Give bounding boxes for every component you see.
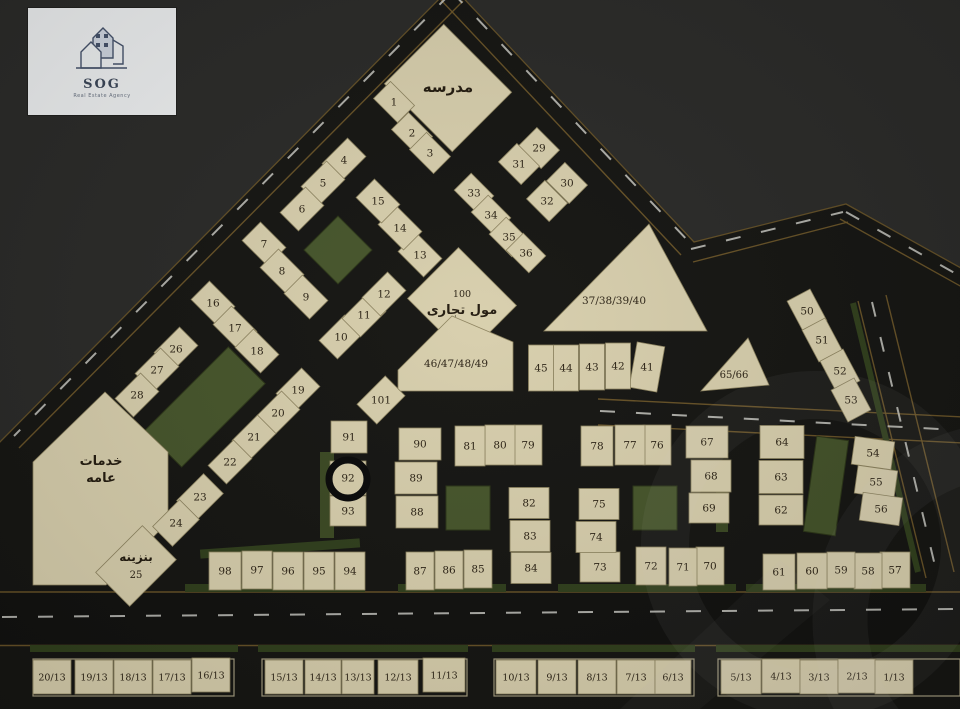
area-public-services-label: خدمات bbox=[80, 454, 123, 469]
parcel-13/13: 13/13 bbox=[342, 660, 374, 694]
area-mall-label: مول تجارى bbox=[427, 303, 498, 318]
parcel-80: 80 bbox=[485, 425, 515, 465]
parcel-label: 11/13 bbox=[430, 671, 457, 682]
parcel-label: 79 bbox=[521, 440, 534, 452]
parcel-18/13: 18/13 bbox=[114, 660, 152, 694]
agency-logo: SOG Real Estate Agency bbox=[28, 8, 176, 115]
parcel-label: 9 bbox=[303, 292, 310, 304]
parcel-label: 60 bbox=[805, 566, 818, 578]
parcel-label: 84 bbox=[524, 563, 538, 575]
parcel-label: 16 bbox=[206, 298, 220, 310]
parcel-label: 85 bbox=[471, 564, 484, 576]
parcel-label: 82 bbox=[522, 498, 535, 510]
parcel-label: 13/13 bbox=[344, 673, 371, 684]
parcel-label: 8/13 bbox=[586, 673, 607, 684]
parcel-label: 92 bbox=[341, 473, 354, 485]
parcel-label: 93 bbox=[341, 506, 354, 518]
parcel-label: 88 bbox=[410, 507, 423, 519]
area-gas-station-label: بنزينه bbox=[119, 550, 153, 564]
parcel-85: 85 bbox=[464, 550, 492, 588]
parcel-label: 36 bbox=[519, 248, 533, 260]
parcel-70: 70 bbox=[696, 547, 724, 585]
parcel-label: 19/13 bbox=[80, 673, 107, 684]
parcel-label: 30 bbox=[560, 178, 573, 190]
parcel-64: 64 bbox=[760, 426, 804, 459]
parcel-label: 20 bbox=[271, 408, 284, 420]
parcel-44: 44 bbox=[554, 345, 579, 391]
parcel-label: 31 bbox=[512, 159, 525, 171]
area-plots-65-66-label: 65/66 bbox=[720, 370, 749, 381]
parcel-label: 75 bbox=[592, 499, 605, 511]
parcel-label: 42 bbox=[611, 361, 624, 373]
parcel-label: 8 bbox=[279, 266, 286, 278]
parcel-label: 23 bbox=[193, 492, 206, 504]
parcel-57: 57 bbox=[880, 552, 910, 588]
parcel-label: 76 bbox=[650, 440, 664, 452]
parcel-17/13: 17/13 bbox=[153, 660, 191, 694]
site-plan-canvas: مدرسه100مول تجارىخدماتعامهبنزينه2537/38/… bbox=[0, 0, 960, 709]
parcel-11/13: 11/13 bbox=[423, 658, 465, 692]
parcel-43: 43 bbox=[580, 344, 605, 390]
sog-logo-house-icon bbox=[71, 24, 133, 76]
parcel-63: 63 bbox=[759, 461, 803, 494]
parcel-label: 90 bbox=[413, 439, 426, 451]
parcel-label: 57 bbox=[888, 565, 901, 577]
parcel-10/13: 10/13 bbox=[496, 660, 536, 694]
parcel-label: 33 bbox=[467, 188, 480, 200]
parcel-81: 81 bbox=[455, 426, 485, 466]
area-gas-station-label: 25 bbox=[130, 570, 143, 581]
parcel-label: 29 bbox=[532, 143, 545, 155]
parcel-15/13: 15/13 bbox=[265, 660, 303, 694]
parcel-45: 45 bbox=[529, 345, 554, 391]
parcel-label: 73 bbox=[593, 562, 606, 574]
parcel-label: 80 bbox=[493, 440, 506, 452]
parcel-label: 12/13 bbox=[384, 673, 411, 684]
parcel-label: 11 bbox=[357, 310, 370, 322]
parcel-label: 94 bbox=[343, 566, 357, 578]
parcel-74: 74 bbox=[576, 522, 616, 553]
parcel-90: 90 bbox=[399, 428, 441, 460]
parcel-label: 18 bbox=[250, 346, 263, 358]
parcel-62: 62 bbox=[759, 495, 803, 525]
parcel-label: 91 bbox=[342, 432, 355, 444]
parcel-86: 86 bbox=[435, 551, 463, 589]
parcel-label: 7 bbox=[261, 239, 268, 251]
parcel-label: 97 bbox=[250, 565, 263, 577]
parcel-96: 96 bbox=[273, 552, 303, 590]
parcel-label: 34 bbox=[484, 210, 498, 222]
logo-title: SOG bbox=[83, 77, 121, 92]
parcel-label: 77 bbox=[623, 440, 636, 452]
parcel-label: 28 bbox=[130, 390, 143, 402]
parcel-77: 77 bbox=[615, 425, 645, 465]
parcel-16/13: 16/13 bbox=[192, 658, 230, 692]
parcel-label: 87 bbox=[413, 566, 426, 578]
parcel-84: 84 bbox=[511, 553, 551, 584]
parcel-label: 2 bbox=[409, 128, 416, 140]
parcel-label: 5 bbox=[320, 178, 327, 190]
parcel-label: 17 bbox=[228, 323, 241, 335]
parcel-label: 69 bbox=[702, 503, 715, 515]
parcel-label: 86 bbox=[442, 565, 456, 577]
parcel-label: 13 bbox=[413, 250, 426, 262]
parcel-label: 81 bbox=[463, 441, 476, 453]
parcel-83: 83 bbox=[510, 521, 550, 552]
parcel-label: 70 bbox=[703, 561, 716, 573]
area-school-label: مدرسه bbox=[423, 78, 473, 96]
parcel-14/13: 14/13 bbox=[305, 660, 341, 694]
parcel-89: 89 bbox=[395, 462, 437, 494]
parcel-label: 95 bbox=[312, 566, 325, 578]
parcel-8/13: 8/13 bbox=[578, 660, 616, 694]
parcel-label: 10 bbox=[334, 332, 347, 344]
parcel-label: 10/13 bbox=[502, 673, 529, 684]
parcel-label: 18/13 bbox=[119, 673, 146, 684]
parcel-label: 1 bbox=[391, 97, 398, 109]
parcel-label: 83 bbox=[523, 531, 536, 543]
parcel-label: 63 bbox=[774, 472, 787, 484]
parcel-82: 82 bbox=[509, 488, 549, 519]
area-plots-46-49-label: 46/47/48/49 bbox=[424, 358, 488, 370]
parcel-label: 9/13 bbox=[546, 673, 567, 684]
parcel-label: 27 bbox=[150, 365, 163, 377]
parcel-label: 26 bbox=[169, 344, 183, 356]
parcel-label: 14 bbox=[393, 223, 407, 235]
parcel-88: 88 bbox=[396, 496, 438, 528]
parcel-label: 3 bbox=[427, 148, 434, 160]
parcel-label: 15/13 bbox=[270, 673, 297, 684]
parcel-label: 64 bbox=[775, 437, 789, 449]
parcel-78: 78 bbox=[581, 426, 613, 466]
parcel-label: 6 bbox=[299, 204, 306, 216]
parcel-label: 21 bbox=[247, 432, 260, 444]
parcel-label: 12 bbox=[377, 289, 390, 301]
area-mall-label: 100 bbox=[453, 289, 471, 300]
parcel-label: 20/13 bbox=[38, 673, 65, 684]
parcel-label: 41 bbox=[640, 362, 653, 374]
area-public-services-label: عامه bbox=[86, 471, 116, 486]
parcel-20/13: 20/13 bbox=[33, 660, 71, 694]
parcel-label: 35 bbox=[502, 232, 515, 244]
parcel-label: 51 bbox=[815, 335, 828, 347]
parcel-19/13: 19/13 bbox=[75, 660, 113, 694]
parcel-73: 73 bbox=[580, 552, 620, 582]
parcel-94: 94 bbox=[335, 552, 365, 590]
area-plots-37-40-label: 37/38/39/40 bbox=[582, 295, 646, 307]
parcel-98: 98 bbox=[209, 552, 241, 590]
parcel-label: 45 bbox=[534, 363, 547, 375]
parcel-label: 24 bbox=[169, 518, 183, 530]
parcel-label: 19 bbox=[291, 385, 304, 397]
parcel-label: 43 bbox=[585, 362, 598, 374]
logo-subtitle: Real Estate Agency bbox=[73, 93, 130, 99]
parcel-42: 42 bbox=[606, 343, 631, 389]
parcel-label: 101 bbox=[371, 395, 391, 407]
parcel-label: 17/13 bbox=[158, 673, 185, 684]
parcel-label: 4 bbox=[341, 155, 348, 167]
parcel-label: 96 bbox=[281, 566, 295, 578]
parcel-label: 15 bbox=[371, 196, 384, 208]
parcel-label: 44 bbox=[559, 363, 573, 375]
parcel-79: 79 bbox=[514, 425, 542, 465]
parcel-label: 32 bbox=[540, 196, 553, 208]
parcel-label: 54 bbox=[866, 448, 880, 460]
parcel-label: 89 bbox=[409, 473, 422, 485]
parcel-label: 98 bbox=[218, 566, 231, 578]
parcel-97: 97 bbox=[242, 551, 272, 589]
parcel-87: 87 bbox=[406, 552, 434, 590]
parcel-12/13: 12/13 bbox=[378, 660, 418, 694]
parcel-75: 75 bbox=[579, 489, 619, 520]
parcel-9/13: 9/13 bbox=[538, 660, 576, 694]
parcel-label: 74 bbox=[589, 532, 603, 544]
parcel-label: 14/13 bbox=[309, 673, 336, 684]
parcel-91: 91 bbox=[331, 421, 367, 453]
parcel-label: 62 bbox=[774, 505, 787, 517]
parcel-95: 95 bbox=[304, 552, 334, 590]
parcel-label: 78 bbox=[590, 441, 603, 453]
parcel-label: 7/13 bbox=[625, 673, 646, 684]
parcel-label: 22 bbox=[223, 457, 236, 469]
parcel-label: 50 bbox=[800, 306, 813, 318]
parcel-label: 16/13 bbox=[197, 671, 224, 682]
